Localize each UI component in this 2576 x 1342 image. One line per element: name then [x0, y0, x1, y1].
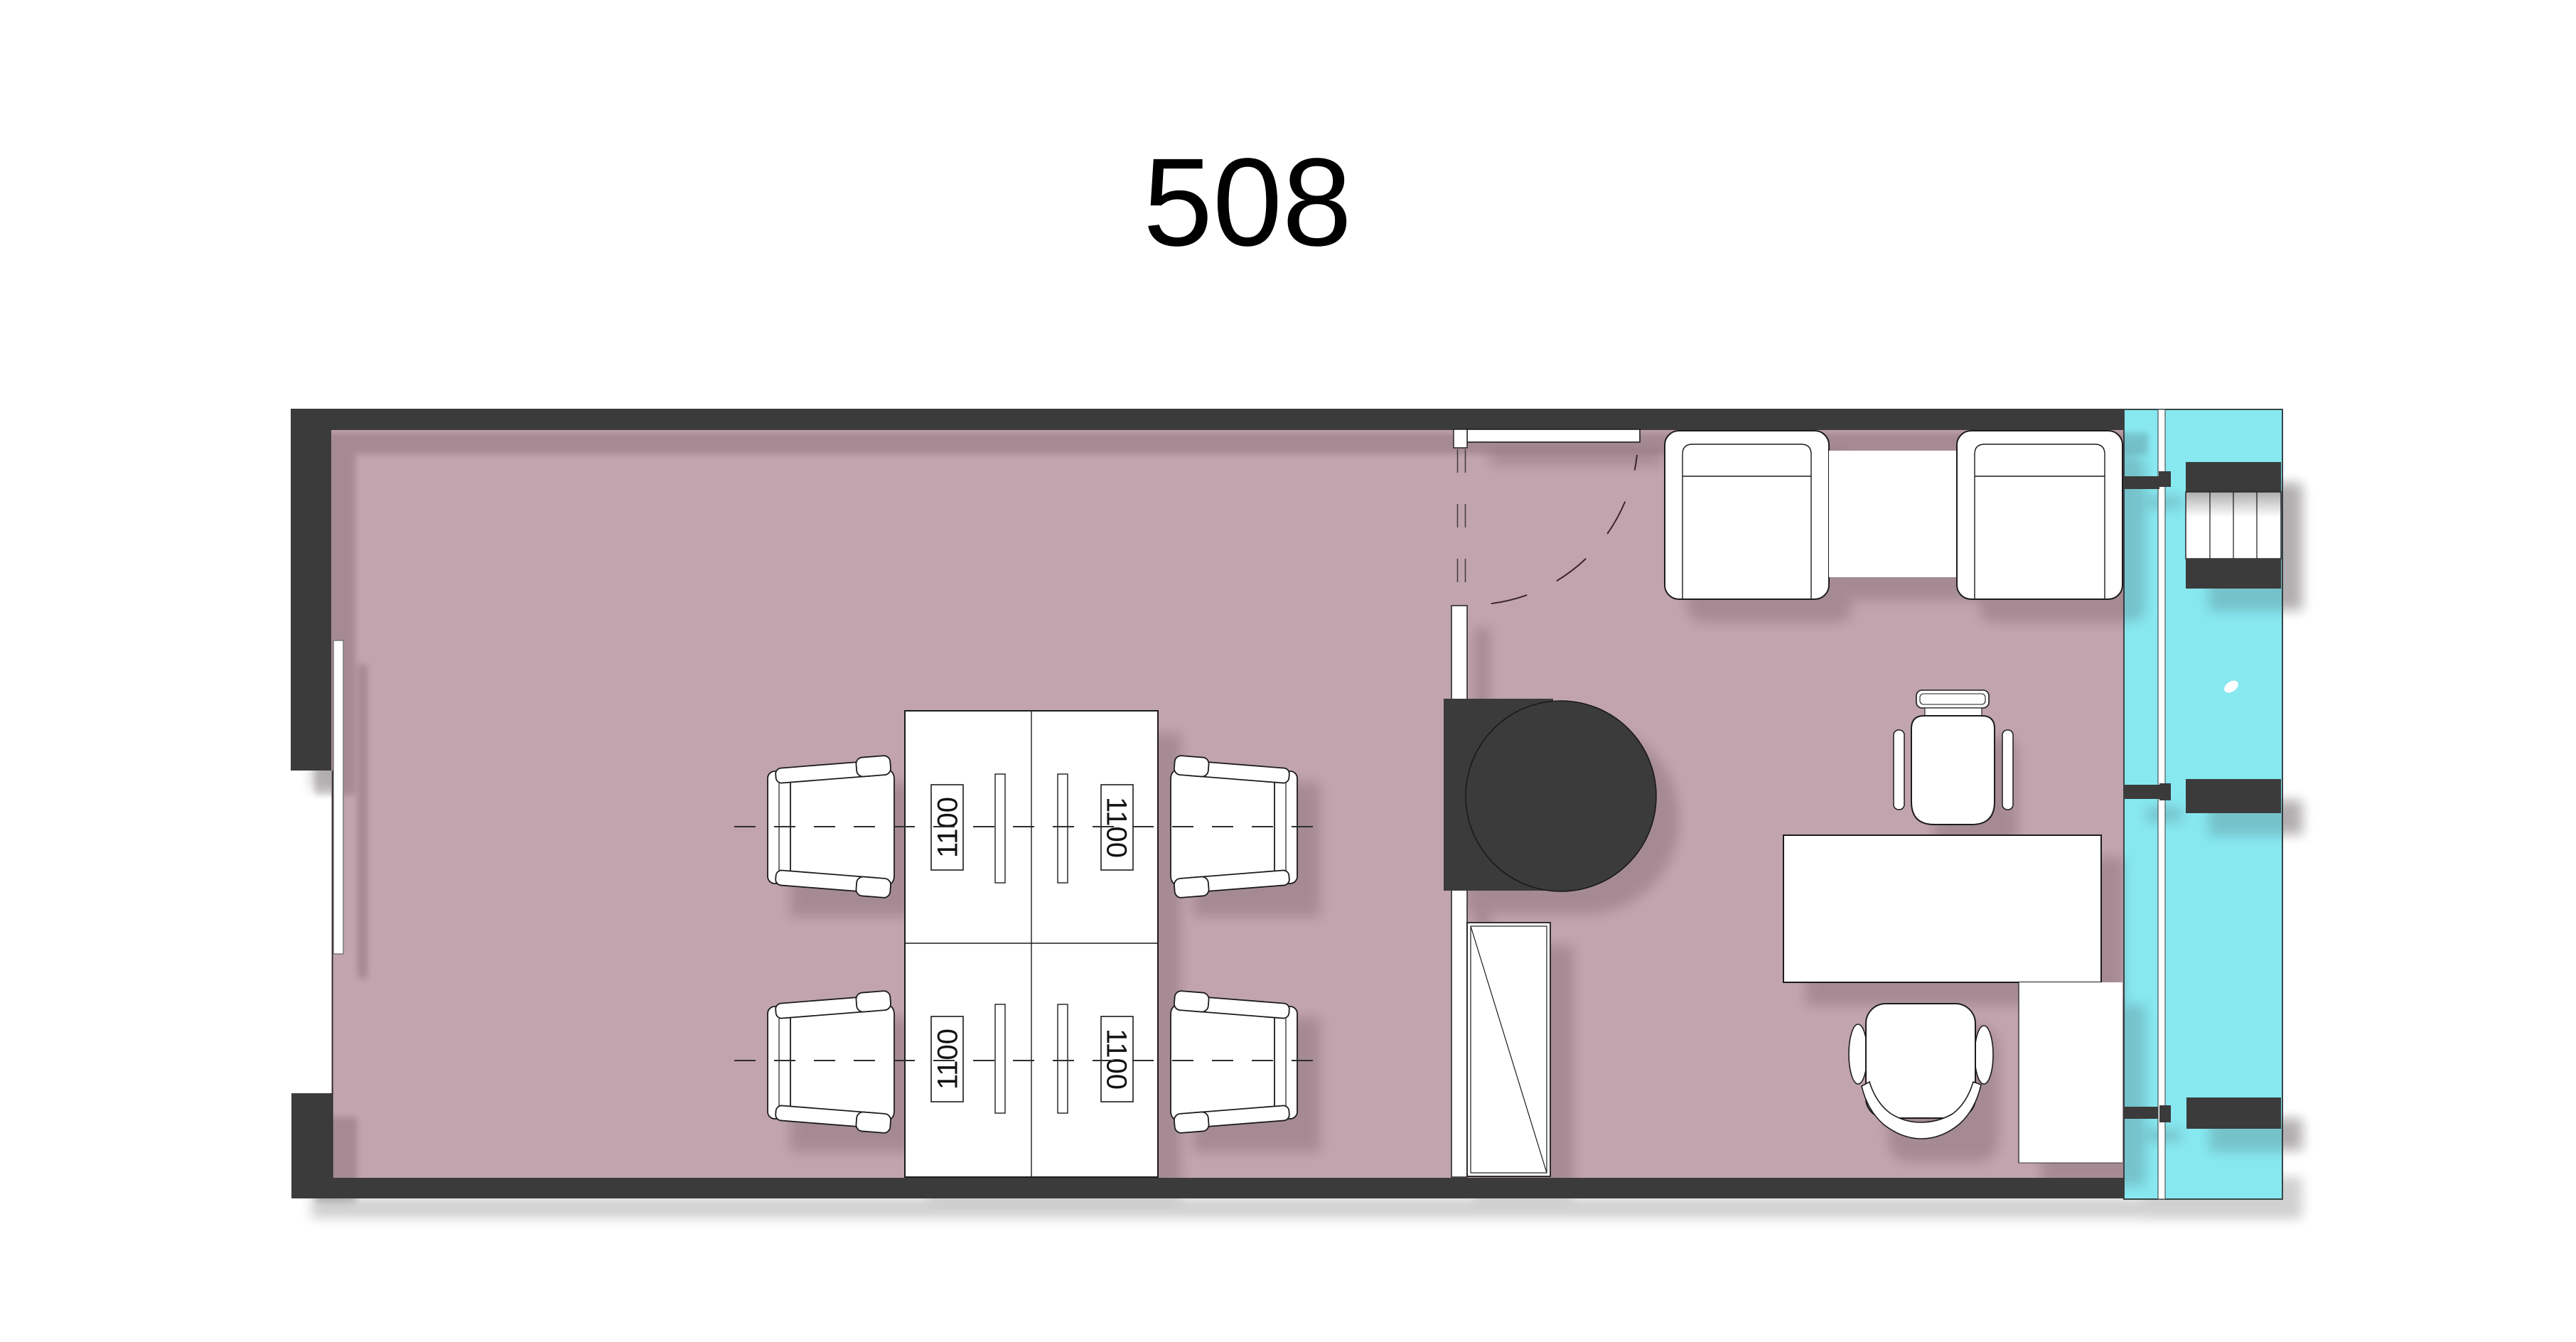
svg-text:1100: 1100: [1101, 1029, 1132, 1090]
svg-text:1100: 1100: [933, 1029, 964, 1090]
svg-text:508: 508: [1143, 133, 1352, 272]
